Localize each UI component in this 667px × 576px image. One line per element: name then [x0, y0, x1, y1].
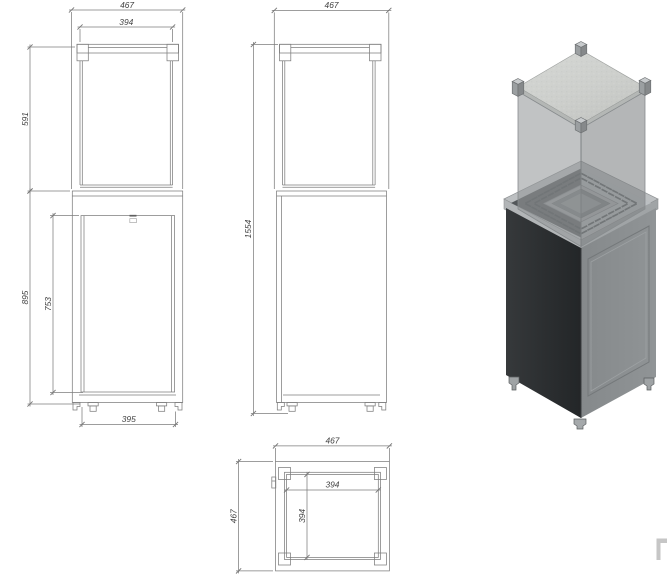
svg-text:467: 467 [325, 435, 339, 445]
svg-text:467: 467 [228, 509, 238, 523]
svg-text:1554: 1554 [243, 219, 253, 238]
svg-text:395: 395 [122, 414, 136, 424]
svg-text:394: 394 [119, 17, 133, 27]
svg-text:895: 895 [20, 290, 30, 304]
svg-text:467: 467 [325, 0, 339, 10]
svg-text:394: 394 [297, 509, 307, 523]
svg-text:467: 467 [120, 0, 134, 10]
svg-text:394: 394 [325, 479, 339, 489]
svg-text:591: 591 [20, 112, 30, 126]
svg-text:753: 753 [43, 297, 53, 311]
